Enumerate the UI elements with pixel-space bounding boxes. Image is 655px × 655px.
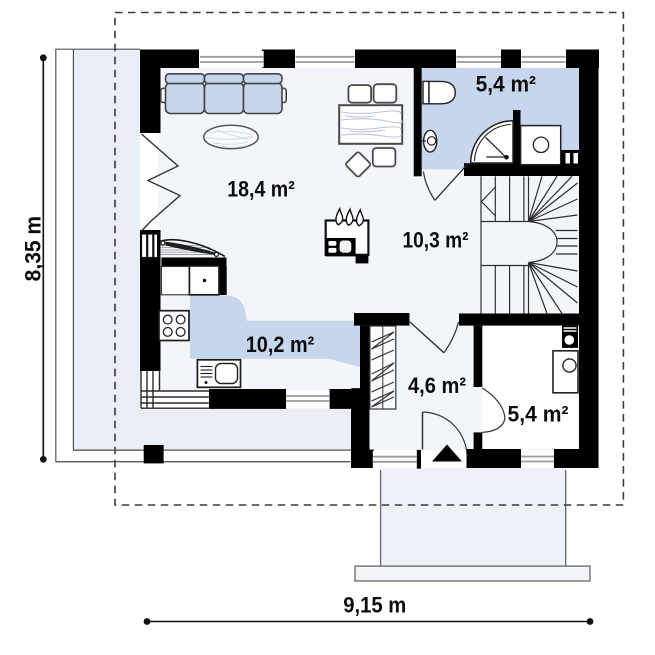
svg-text:8,35 m: 8,35 m (20, 216, 45, 282)
svg-text:18,4 m²: 18,4 m² (227, 176, 295, 201)
svg-text:9,15 m: 9,15 m (343, 593, 406, 618)
svg-text:5,4 m²: 5,4 m² (476, 72, 537, 97)
svg-text:10,2 m²: 10,2 m² (246, 332, 315, 357)
svg-text:10,3 m²: 10,3 m² (403, 228, 469, 253)
svg-text:4,6 m²: 4,6 m² (408, 373, 466, 398)
svg-text:5,4 m²: 5,4 m² (508, 402, 569, 427)
